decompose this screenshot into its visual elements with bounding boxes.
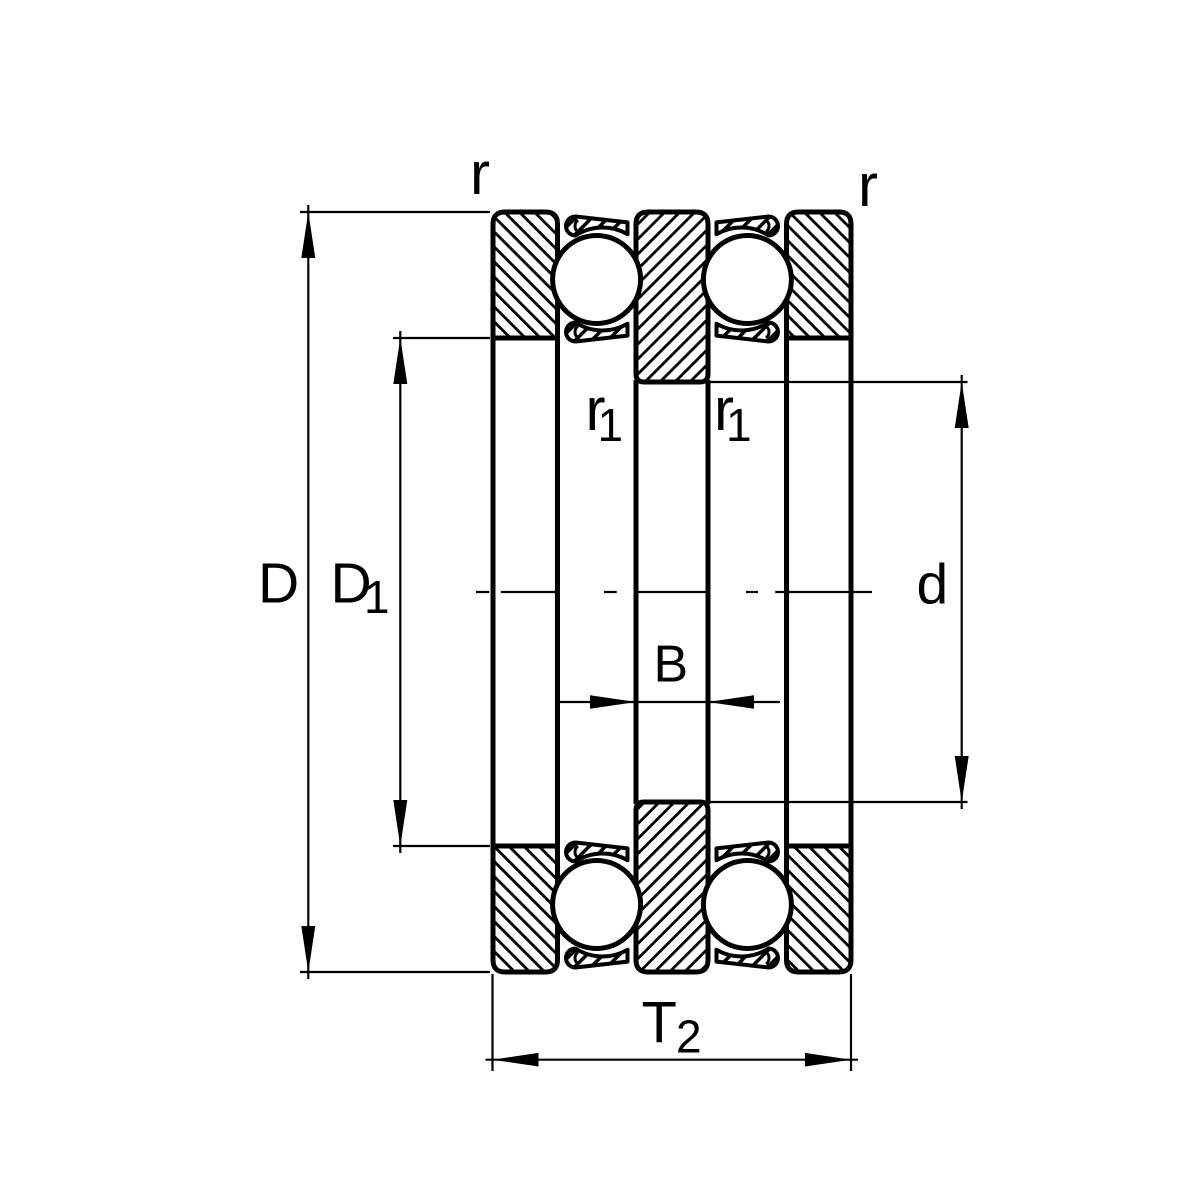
svg-text:1: 1	[726, 399, 752, 451]
svg-text:B: B	[654, 636, 689, 694]
svg-text:1: 1	[598, 399, 624, 451]
svg-text:r: r	[858, 152, 878, 219]
svg-text:T: T	[642, 991, 677, 1056]
svg-text:D: D	[258, 552, 299, 616]
svg-text:d: d	[917, 553, 949, 617]
svg-text:1: 1	[364, 571, 390, 623]
svg-text:2: 2	[676, 1011, 702, 1063]
svg-text:r: r	[470, 140, 490, 207]
